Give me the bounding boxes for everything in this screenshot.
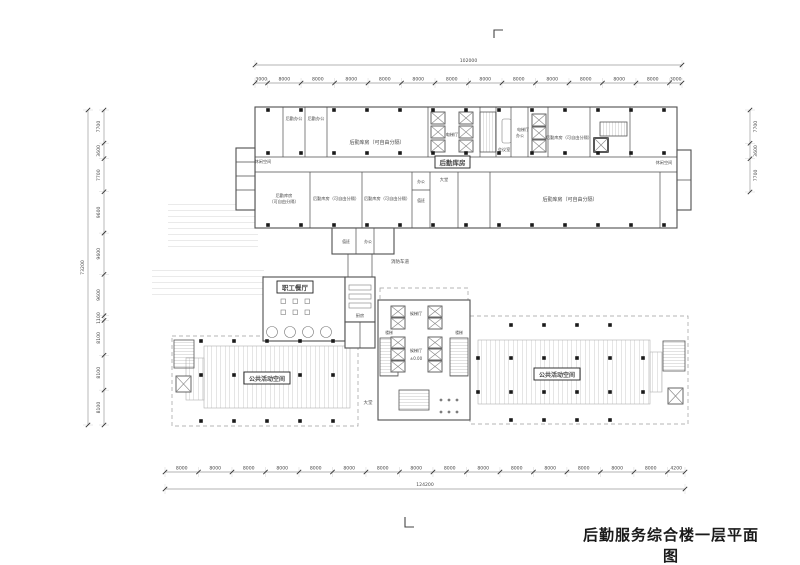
room-label-storage-top-right: 后勤库房（可自由分隔） [546,134,592,141]
column-marker [629,108,633,112]
room-label-elevator-hall1: 电梯厅 [446,131,459,138]
room-label-leisure-right: 休闲空间 [656,159,673,166]
room-label-storage-b2: 后勤库房（可自由分隔） [313,195,359,202]
dimension-value: 8000 [477,466,489,472]
column-marker [332,223,336,227]
column-marker [596,108,600,112]
column-marker [464,151,468,155]
column-marker [662,151,666,155]
column-marker [575,356,579,360]
elevator-shaft [428,306,442,317]
dimension-value: 8000 [613,77,625,83]
column-marker [530,151,534,155]
column-marker [298,373,302,377]
stair-upper-core [480,112,496,152]
dimension-value: 8000 [345,77,357,83]
elevator-shaft [594,138,608,152]
elevator-shaft [428,361,442,372]
column-marker [398,108,402,112]
column-marker [608,390,612,394]
elevator-shaft [431,112,445,124]
dimension-value: 8000 [379,77,391,83]
dimension-chain: 8000800080008000800080008000800080008000… [163,466,687,478]
dimension-value: 7700 [753,169,759,181]
dimension-chain: 770036007700 [745,108,759,194]
column-marker [509,418,513,422]
dimension-value: 8000 [278,77,290,83]
dimension-value: 8000 [377,466,389,472]
dimension-value: 8000 [410,466,422,472]
elevator-shaft [176,376,191,392]
column-marker [365,151,369,155]
dimension-value: 7700 [96,121,102,133]
public-right-label: 公共活动空间 [539,371,575,379]
dimension-value: 8000 [276,466,288,472]
column-marker [575,390,579,394]
column-marker [265,419,269,423]
dimension-chain: 124200 [163,482,687,494]
elevator-shaft [391,337,405,348]
room-label-storage-b3: 后勤库房（可自由分隔） [364,195,410,202]
room-label-stair-left: 楼梯 [385,330,393,335]
dimension-value: 8000 [176,466,188,472]
elevator-shaft [532,140,546,152]
column-marker [509,390,513,394]
column-marker [331,373,335,377]
column-marker [298,339,302,343]
column-marker [431,108,435,112]
room-label-lobby: 大堂 [364,399,373,406]
public-left-label: 公共活动空间 [249,375,285,383]
elevator-shaft [391,361,405,372]
column-marker [509,323,513,327]
dimension-value: 102000 [460,58,478,64]
room-label-stair-right: 楼梯 [455,330,463,335]
room-label-storage-b1-line2: （可自由分隔） [269,198,298,205]
column-marker [398,223,402,227]
room-label-storage-right: 后勤库房（可自由分隔） [542,196,597,203]
column-marker [266,151,270,155]
column-marker [476,356,480,360]
room-label-storage-b1-line1: 后勤库房 [276,192,293,199]
column-marker [629,151,633,155]
elevator-shaft [668,388,683,404]
dimension-value: 73200 [80,260,86,275]
room-label-leisure-left: 休闲空间 [255,158,272,165]
column-marker [464,223,468,227]
dimension-value: 8000 [544,466,556,472]
dimension-value: 8000 [412,77,424,83]
column-marker [331,419,335,423]
dimension-value: 9600 [96,207,102,219]
column-marker [497,223,501,227]
room-label-waiting-hall2: 候梯厅 [410,347,423,354]
column-marker [265,339,269,343]
dimension-chain: 3000800080008000800080008000800080008000… [253,77,684,89]
column-marker [542,418,546,422]
column-marker [431,151,435,155]
dimension-value: 3600 [753,145,759,157]
column-marker [629,223,633,227]
dimension-value: 8100 [96,402,102,414]
dimension-value: 8000 [611,466,623,472]
column-marker [596,223,600,227]
room-label-office2: 后勤办公 [308,115,326,122]
storage-tag-label: 后勤库房 [440,158,467,167]
dimension-value: 8100 [96,367,102,379]
dimension-value: 7700 [96,169,102,181]
room-label-kitchen: 厨房 [356,312,364,319]
column-marker [563,108,567,112]
dimension-chain: 73200 [80,108,93,427]
fire-lane-label: 消防车道 [391,258,409,265]
column-marker [530,223,534,227]
dimension-chain: 7700360077009600960096001100810081008100 [96,108,109,427]
dimension-value: 8000 [444,466,456,472]
column-marker [575,418,579,422]
dimension-value: 3000 [670,77,682,83]
dimension-value: 4200 [670,466,682,472]
column-marker [542,323,546,327]
elevator-shaft [459,112,473,124]
dimension-value: 8000 [546,77,558,83]
column-marker [464,108,468,112]
column-marker [641,390,645,394]
column-marker [662,108,666,112]
column-marker [662,223,666,227]
column-marker [542,356,546,360]
room-label-waiting-hall1: 候梯厅 [410,310,423,317]
column-marker [332,108,336,112]
dimension-value: 3000 [255,77,267,83]
section-markers [405,30,503,527]
drawing-sheet: 1020003000800080008000800080008000800080… [0,0,800,565]
column-marker [608,356,612,360]
dimension-chain: 102000 [253,58,684,70]
column-marker [199,373,203,377]
column-marker [641,356,645,360]
stair-upper-right [600,122,627,136]
column-marker [563,151,567,155]
dimension-value: 8000 [243,466,255,472]
stair-core-right [450,338,468,376]
dimension-value: 3600 [96,145,102,157]
dimension-value: 124200 [416,482,434,488]
column-marker [299,151,303,155]
column-marker [365,108,369,112]
dimension-value: 8000 [310,466,322,472]
room-label-lobby-small: 大堂 [440,176,448,183]
elevator-shaft [532,127,546,139]
dimension-value: 8000 [578,466,590,472]
elevator-shaft [459,126,473,138]
column-marker [199,419,203,423]
level-mark: ±0.00 [410,356,423,361]
drawing-title: 后勤服务综合楼一层平面图 [576,524,766,565]
canteen-label: 职工餐厅 [282,283,309,292]
column-marker [299,108,303,112]
dimension-value: 8100 [96,332,102,344]
dimension-value: 8000 [343,466,355,472]
room-label-office-small: 办公 [516,132,524,138]
elevator-shaft [431,140,445,152]
dimension-value: 9600 [96,289,102,301]
elevator-shaft [459,140,473,152]
column-marker [232,373,236,377]
dimension-value: 8000 [580,77,592,83]
column-marker [608,418,612,422]
room-label-duty-b2: 值班 [417,198,425,203]
section-marker-top [494,30,503,38]
dimension-value: 8000 [513,77,525,83]
elevator-shaft [431,126,445,138]
dimension-value: 8000 [312,77,324,83]
room-label-storage-big: 后勤库房（可自由分隔） [349,139,404,146]
column-marker [476,390,480,394]
column-marker [232,339,236,343]
dimension-value: 8000 [479,77,491,83]
column-marker [266,223,270,227]
room-label-office1: 后勤办公 [286,115,304,122]
dimension-value: 8000 [209,466,221,472]
column-marker [331,339,335,343]
elevator-shaft [391,318,405,329]
floor-plan: 1020003000800080008000800080008000800080… [0,0,800,565]
column-marker [332,151,336,155]
elevator-shaft [391,306,405,317]
column-marker [530,108,534,112]
dimension-value: 8000 [647,77,659,83]
column-marker [608,323,612,327]
dimension-value: 7700 [753,121,759,133]
dimension-value: 8000 [446,77,458,83]
column-marker [431,223,435,227]
column-marker [298,419,302,423]
dimension-value: 8000 [511,466,523,472]
column-marker [509,356,513,360]
elevator-shaft [391,349,405,360]
room-label-elevator-hall2: 电梯厅 [517,126,529,132]
room-label-annex-office: 办公 [364,239,372,244]
elevator-shaft [428,349,442,360]
column-marker [575,323,579,327]
column-marker [365,223,369,227]
column-marker [563,223,567,227]
stair-wing-left [174,340,194,368]
road-markings [152,203,264,300]
column-marker [266,108,270,112]
column-marker [232,419,236,423]
stair-lobby [399,390,429,410]
room-label-meeting: 会议室 [498,146,511,153]
dimension-value: 8000 [645,466,657,472]
stair-wing-right [663,341,685,371]
elevator-shaft [532,114,546,126]
column-marker [497,108,501,112]
elevator-shaft [428,337,442,348]
section-marker-bottom [405,517,414,527]
room-label-office-b2: 办公 [417,179,425,184]
column-marker [199,339,203,343]
column-marker [398,151,402,155]
column-marker [596,151,600,155]
elevator-shaft [428,318,442,329]
dimension-value: 9600 [96,248,102,260]
column-marker [299,223,303,227]
dimension-value: 1100 [96,312,102,324]
room-label-annex-duty: 值班 [342,239,350,244]
column-marker [542,390,546,394]
